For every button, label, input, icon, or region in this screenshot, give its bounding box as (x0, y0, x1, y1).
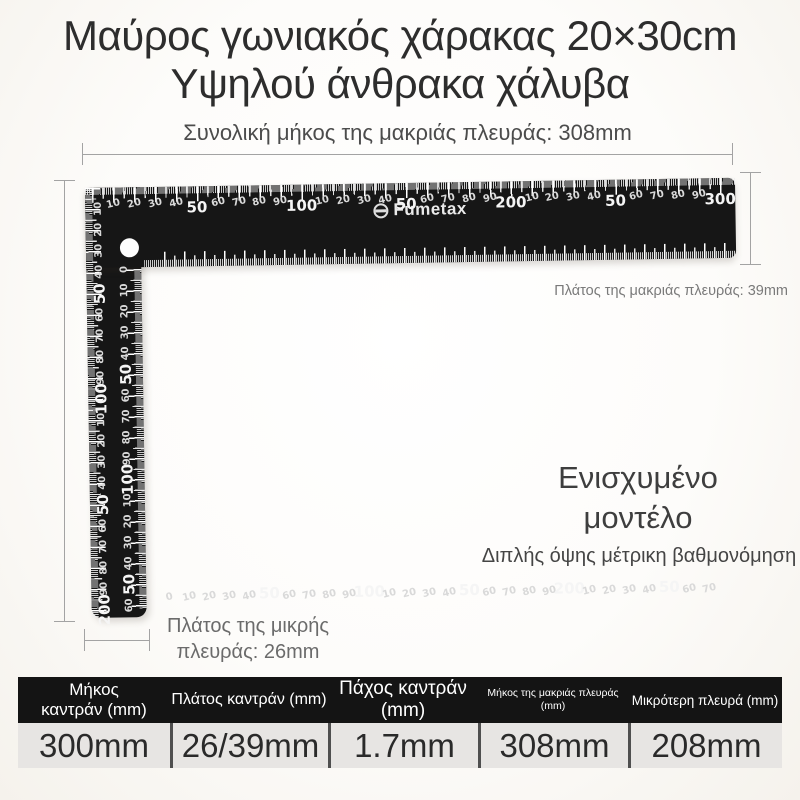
header-text: Πάχος καντράν (339, 678, 467, 700)
header-text: Πλάτος καντράν (mm) (171, 691, 326, 709)
ruler-scale-number: 40 (120, 346, 131, 360)
ruler-scale-number: 20 (93, 223, 104, 237)
ruler-scale-number: 60 (94, 307, 105, 321)
ruler-scale-number: 10 (381, 587, 397, 601)
spec-value-dial-thickness: 1.7mm (328, 723, 478, 768)
spec-value-dial-width: 26/39mm (170, 723, 328, 768)
ruler-scale-number: 40 (97, 476, 108, 490)
dimension-line-bottom (84, 640, 150, 641)
spec-header-dial-thickness: Πάχος καντράν (mm) (328, 677, 478, 723)
ruler-scale-number: 30 (120, 325, 131, 339)
ruler-scale-number: 30 (621, 583, 637, 597)
ruler-scale-number: 40 (241, 589, 257, 603)
ruler-scale-number: 50 (459, 581, 480, 599)
ruler-scale-number: 40 (123, 556, 134, 570)
ruler-scale-number: 80 (121, 430, 132, 444)
ruler-scale-number: 70 (95, 328, 106, 342)
spec-table-value-row: 300mm 26/39mm 1.7mm 308mm 208mm (18, 723, 782, 768)
title-line-2: Υψηλού άνθρακα χάλυβα (0, 60, 800, 108)
ruler-scale-number: 200 (495, 193, 527, 211)
ruler-scale-number: 200 (554, 579, 586, 597)
ruler-scale-number: 60 (481, 585, 497, 599)
spec-header-dial-length: Μήκος καντράν (mm) (18, 677, 170, 723)
ruler-scale-number: 300 (704, 190, 736, 208)
ruler-scale-number: 20 (119, 304, 130, 318)
header-text: καντράν (mm) (41, 700, 147, 720)
ruler-scale-number: 50 (90, 283, 108, 304)
ruler-scale-number: 70 (301, 588, 317, 602)
ruler-scale-number: 50 (94, 494, 112, 515)
page-title: Μαύρος γωνιακός χάρακας 20×30cm Υψηλού ά… (0, 12, 800, 108)
title-line-1: Μαύρος γωνιακός χάρακας 20×30cm (0, 12, 800, 60)
ruler-scale-number: 30 (421, 586, 437, 600)
ruler-scale-number: 10 (96, 413, 107, 427)
ruler-scale-number: 50 (117, 364, 135, 385)
header-text: (mm) (541, 700, 566, 713)
ruler-scale-number: 100 (354, 582, 386, 600)
short-side-width-line-2: πλευράς: 26mm (150, 639, 346, 665)
ruler-scale-number: 50 (605, 192, 626, 210)
ruler-scale-number: 100 (92, 383, 110, 415)
ruler-scale-number: 50 (120, 574, 138, 595)
ruler-scale-number: 100 (286, 196, 318, 214)
short-side-width-line-1: Πλάτος της μικρής (150, 613, 346, 639)
ruler-scale-number: 10 (581, 584, 597, 598)
spec-table-header-row: Μήκος καντράν (mm) Πλάτος καντράν (mm) Π… (18, 677, 782, 723)
ruler-scale-number: 0 (119, 266, 130, 273)
ruler-scale-number: 50 (186, 198, 207, 216)
ruler-scale-number: 60 (281, 588, 297, 602)
dimension-line-left (64, 180, 65, 622)
ruler-scale-number: 70 (121, 409, 132, 423)
ruler-scale-number: 40 (641, 583, 657, 597)
ruler-scale-number: 30 (97, 455, 108, 469)
ruler-scale-number: 60 (98, 518, 109, 532)
spec-table: Μήκος καντράν (mm) Πλάτος καντράν (mm) Π… (18, 677, 782, 768)
ruler-scale-number: 50 (396, 195, 417, 213)
ruler-scale-number: 60 (124, 598, 135, 612)
ruler-scale-number: 20 (96, 434, 107, 448)
ruler-scale-number: 20 (401, 586, 417, 600)
ruler-scale-number: 80 (321, 588, 337, 602)
ruler-scale-number: 50 (259, 584, 280, 602)
ruler-scale-number: 40 (441, 586, 457, 600)
ruler-scale-number: 30 (93, 244, 104, 258)
spec-value-dial-length: 300mm (18, 723, 170, 768)
spec-header-long-side-length: Μήκος της μακριάς πλευράς (mm) (478, 677, 628, 723)
ruler-scale-number: 30 (221, 589, 237, 603)
dimension-line-right (750, 172, 751, 265)
spec-value-short-side: 208mm (628, 723, 782, 768)
ruler-scale-number: 70 (98, 539, 109, 553)
header-text: Μήκος της μακριάς πλευράς (487, 687, 618, 700)
ruler-scale-number: 10 (119, 283, 130, 297)
ruler-scale-number: 60 (121, 388, 132, 402)
ruler-scale-number: 70 (501, 585, 517, 599)
ruler-scale-number: 10 (122, 493, 133, 507)
ruler-scale-number: 20 (201, 590, 217, 604)
ruler-scale-number: 40 (94, 265, 105, 279)
spec-header-dial-width: Πλάτος καντράν (mm) (170, 677, 328, 723)
short-side-width-label: Πλάτος της μικρής πλευράς: 26mm (150, 613, 346, 665)
l-square-ruler: Fumetax 10203040506070809010010203040506… (85, 178, 742, 618)
ruler-scale-number: 80 (95, 350, 106, 364)
ruler-scale-number: 100 (118, 464, 136, 496)
ruler-scale-number: 80 (521, 585, 537, 599)
ruler-scale-number: 50 (659, 578, 680, 596)
spec-value-long-side-length: 308mm (478, 723, 628, 768)
ruler-scale-number: 20 (601, 583, 617, 597)
ruler-scale-number: 0 (165, 591, 174, 603)
ruler-scale-number: 10 (181, 590, 197, 604)
header-text: (mm) (381, 700, 425, 722)
spec-header-short-side: Μικρότερη πλευρά (mm) (628, 677, 782, 723)
ruler-scale-number: 70 (701, 582, 717, 596)
ruler-scale-number: 80 (98, 560, 109, 574)
ruler-scale-number: 200 (95, 594, 113, 626)
header-text: Μικρότερη πλευρά (mm) (632, 693, 778, 708)
header-text: Μήκος (69, 680, 119, 700)
dimension-line-top (82, 154, 733, 155)
ruler-scale-number: 60 (681, 582, 697, 596)
ruler-scale-number: 10 (93, 202, 104, 216)
product-image: Μαύρος γωνιακός χάρακας 20×30cm Υψηλού ά… (0, 0, 800, 800)
ruler-scale-number: 30 (123, 535, 134, 549)
long-side-length-label: Συνολική μήκος της μακριάς πλευράς: 308m… (82, 120, 733, 146)
ruler-scale-number: 20 (123, 514, 134, 528)
